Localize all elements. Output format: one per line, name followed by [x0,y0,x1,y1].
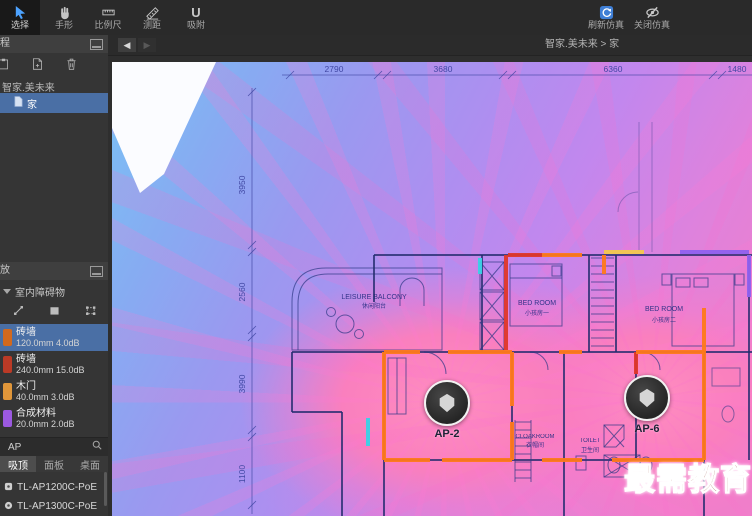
document-icon [14,96,23,110]
rectangle-tool-icon[interactable] [36,304,72,322]
ap-model-label: TL-AP1300C-PoE [17,501,97,512]
magnet-icon: U [191,6,200,20]
dim-label: 6360 [604,64,623,74]
measure-icon [145,5,160,20]
ap-model-list: TL-AP1200C-PoE TL-AP1200C-PoE TL-AP1300C… [0,472,108,516]
left-sidebar: 工程 智家.美未来 家 布放 室内障碍物 [0,35,109,516]
deploy-panel-header: 布放 [0,262,108,280]
room-label-zh: 衣帽间 [526,441,544,449]
room-label: CLOAKROOM [515,434,554,440]
room-bedroom-2: BED ROOM 小孩房二 [645,274,744,346]
room-cloakroom: CLOAKROOM 衣帽间 [515,420,555,482]
obstacle-spec: 20.0mm 2.0dB [16,419,75,430]
tree-node-home[interactable]: 家 [0,93,108,113]
project-tree-toolbar [0,55,108,77]
obstacle-color-swatch [3,410,12,427]
wifi-simulation-app: 选择 手形 比例尺 测距 U 吸附 刷新仿真 [0,0,752,516]
obstacle-category-dropdown[interactable]: 室内障碍物 [0,282,108,300]
eye-off-icon [645,5,660,20]
scale-tool-label: 比例尺 [94,21,121,30]
snap-tool-label: 吸附 [187,21,205,30]
obstacle-spec: 40.0mm 3.0dB [16,392,75,403]
list-item-ap1200c[interactable]: TL-AP1200C-PoE [0,478,108,497]
ap-search-row [0,437,108,457]
dim-label: 3990 [237,374,247,393]
measure-tool-label: 测距 [143,21,161,30]
dim-label: 2560 [237,282,247,301]
dim-label: 3680 [434,64,453,74]
hand-tool-button[interactable]: 手形 [44,0,84,35]
room-label-zh: 卫生间 [581,446,599,454]
refresh-simulation-label: 刷新仿真 [588,21,624,30]
watermark-text: 最需教育 [624,454,752,499]
ap-marker-icon [426,382,468,424]
obstacle-spec: 240.0mm 15.0dB [16,365,85,376]
delete-icon[interactable] [54,57,88,76]
dimension-line-top: 2790 3680 6360 1480 [282,64,752,79]
ap-model-label: TL-AP1200C-PoE [17,472,97,474]
obstacle-name: 合成材料 [16,408,75,419]
dim-label: 1480 [728,64,747,74]
list-item-brick-wall-120[interactable]: 砖墙120.0mm 4.0dB [0,324,108,351]
scale-tool-button[interactable]: 比例尺 [88,0,128,35]
deploy-panel-title: 布放 [0,265,11,276]
ap-device-icon [4,501,13,513]
cursor-icon [13,5,28,20]
obstacle-color-swatch [3,329,12,346]
room-label: TOILET [580,438,601,444]
sidebar-scrollbar[interactable] [104,472,107,506]
tree-node-label: 家 [27,96,37,111]
obstacle-overlays [368,252,749,460]
tab-panel[interactable]: 面板 [36,456,72,472]
snap-tool-button[interactable]: U 吸附 [176,0,216,35]
main-toolbar: 选择 手形 比例尺 测距 U 吸附 刷新仿真 [0,0,752,36]
obstacle-list: 砖墙120.0mm 4.0dB 砖墙240.0mm 15.0dB 木门40.0m… [0,324,108,437]
obstacle-name: 木门 [16,381,75,392]
dim-label: 2790 [325,64,344,74]
forward-button[interactable]: ▶ [138,38,156,52]
obstacle-name: 砖墙 [16,354,85,365]
refresh-icon [599,5,614,20]
close-simulation-button[interactable]: 关闭仿真 [629,0,675,35]
project-group-label[interactable]: 智家.美未来 [2,79,55,94]
list-item-brick-wall-240[interactable]: 砖墙240.0mm 15.0dB [0,351,108,378]
dim-label: 1100 [237,465,247,484]
project-panel-header: 工程 [0,35,108,53]
floorplan-drawing: 2790 3680 6360 1480 3950 [112,62,752,516]
floorplan-canvas-area: ◀ ▶ 智家.美未来 > 家 2790 3680 6 [108,35,752,516]
corridor-doors [618,122,652,252]
ap-marker-ap6[interactable] [624,375,670,421]
hand-icon [57,5,72,20]
collapse-panel-icon[interactable] [90,39,103,50]
ruler-icon [101,5,116,20]
ap-marker-ap2[interactable] [424,380,470,426]
ap-device-icon [4,472,13,475]
room-label-zh: 小孩房二 [652,316,676,324]
back-button[interactable]: ◀ [118,38,136,52]
list-item-wood-door[interactable]: 木门40.0mm 3.0dB [0,378,108,405]
room-label: BED ROOM [645,306,683,313]
refresh-simulation-button[interactable]: 刷新仿真 [583,0,629,35]
select-tool-button[interactable]: 选择 [0,0,40,35]
room-label-zh: 休闲阳台 [362,302,386,310]
ap-model-label: TL-AP1200C-PoE [17,482,97,493]
obstacle-name: 砖墙 [16,327,80,338]
measure-tool-button[interactable]: 测距 [132,0,172,35]
obstacle-color-swatch [3,383,12,400]
room-label: BED ROOM [518,300,556,307]
wifi-heatmap[interactable]: 2790 3680 6360 1480 3950 [112,62,752,516]
search-icon[interactable] [91,438,103,456]
list-item-synthetic-material[interactable]: 合成材料20.0mm 2.0dB [0,405,108,432]
ap-label-ap2: AP-2 [434,428,459,440]
tab-desktop[interactable]: 桌面 [72,456,108,472]
room-leisure-balcony: LEISURE BALCONY 休闲阳台 [292,268,442,350]
search-input[interactable] [0,441,91,454]
list-item-ap1300c[interactable]: TL-AP1300C-PoE [0,497,108,516]
breadcrumb: 智家.美未来 > 家 [545,35,619,55]
obstacle-spec: 120.0mm 4.0dB [16,338,80,349]
tab-ceiling[interactable]: 吸顶 [0,456,36,472]
obstacle-category-value: 室内障碍物 [15,284,65,299]
polygon-tool-icon[interactable] [72,304,108,322]
shaft-hatching [480,262,504,350]
dimension-line-left: 3950 2560 3990 1100 [237,88,256,514]
mount-type-tabs: 吸顶 面板 桌面 [0,456,108,472]
project-panel-title: 工程 [0,38,11,49]
new-file-icon[interactable] [20,57,54,76]
select-tool-label: 选择 [11,21,29,30]
collapse-panel-icon[interactable] [90,266,103,277]
canvas-header: ◀ ▶ 智家.美未来 > 家 [108,35,752,56]
obstacle-color-swatch [3,356,12,373]
chevron-down-icon [3,289,11,294]
ap-marker-icon [626,377,668,419]
room-label-zh: 小孩房一 [525,309,549,317]
dim-label: 3950 [237,175,247,194]
hand-tool-label: 手形 [55,21,73,30]
ap-label-ap6: AP-6 [634,423,659,435]
draw-tools-row [0,302,108,324]
paste-icon[interactable] [0,57,20,76]
room-bedroom-1: BED ROOM 小孩房一 [510,264,562,326]
list-item[interactable]: TL-AP1200C-PoE [0,472,108,478]
line-tool-icon[interactable] [0,304,36,322]
close-simulation-label: 关闭仿真 [634,21,670,30]
ap-device-icon [4,482,13,494]
right-bathroom [712,368,740,422]
